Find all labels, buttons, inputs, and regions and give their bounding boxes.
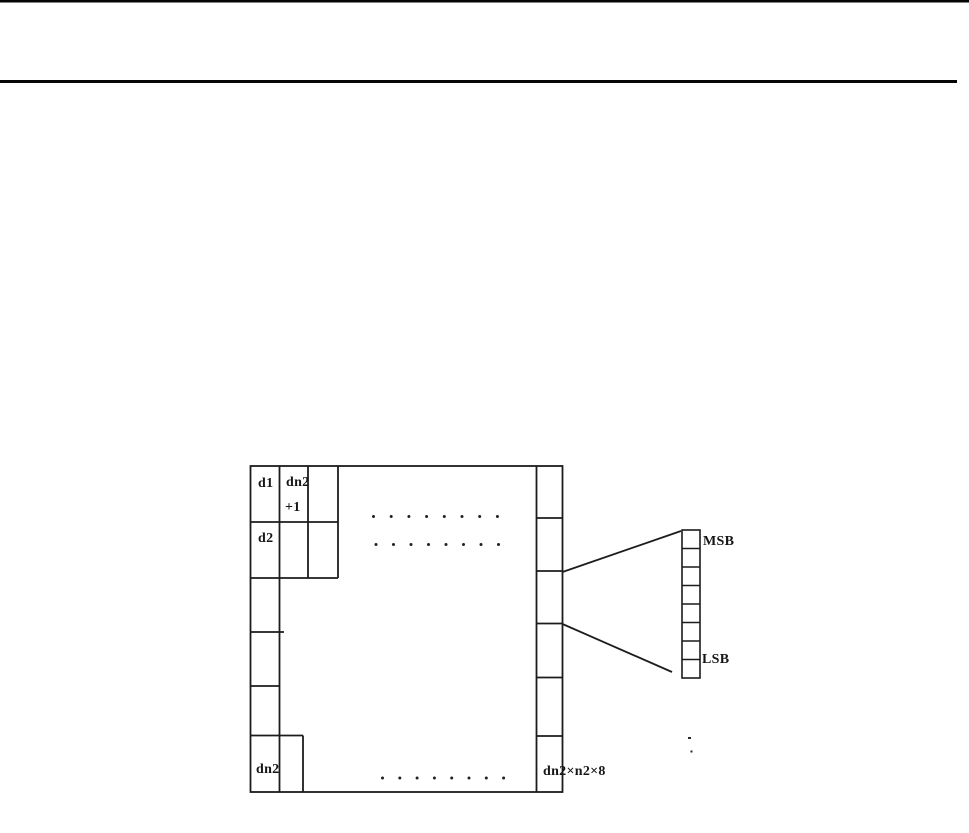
- total-bytes-expression: dn2×n2×8: [543, 765, 606, 779]
- right-byte-strip: [537, 466, 563, 792]
- scanned-manual-page: d1 dn2 +1 d2 dn2 dn2×n2×8 MSB LSB: [0, 0, 969, 833]
- header-rule: [0, 80, 957, 83]
- ellipsis-dots-row-2: [375, 543, 501, 546]
- callout-lines: [563, 531, 682, 672]
- callout-line-bottom: [563, 624, 673, 672]
- page-top-rule: [0, 0, 969, 3]
- left-column-dividers: [251, 632, 304, 736]
- cell-label-dn2-plus1-line1: dn2: [286, 476, 309, 490]
- lsb-label: LSB: [702, 653, 729, 667]
- scan-specks: [688, 737, 693, 753]
- cell-label-dn2-bottom: dn2: [256, 763, 279, 777]
- ellipsis-dots-row-3: [381, 777, 505, 780]
- ellipsis-dots-row-1: [372, 515, 499, 518]
- cell-label-d2: d2: [258, 532, 273, 546]
- msb-label: MSB: [703, 535, 734, 549]
- data-format-diagram: [0, 0, 969, 833]
- cell-label-dn2-plus1-line2: +1: [285, 501, 301, 515]
- bit-detail-column: [682, 530, 700, 678]
- callout-line-top: [563, 531, 682, 572]
- cell-label-d1: d1: [258, 477, 273, 491]
